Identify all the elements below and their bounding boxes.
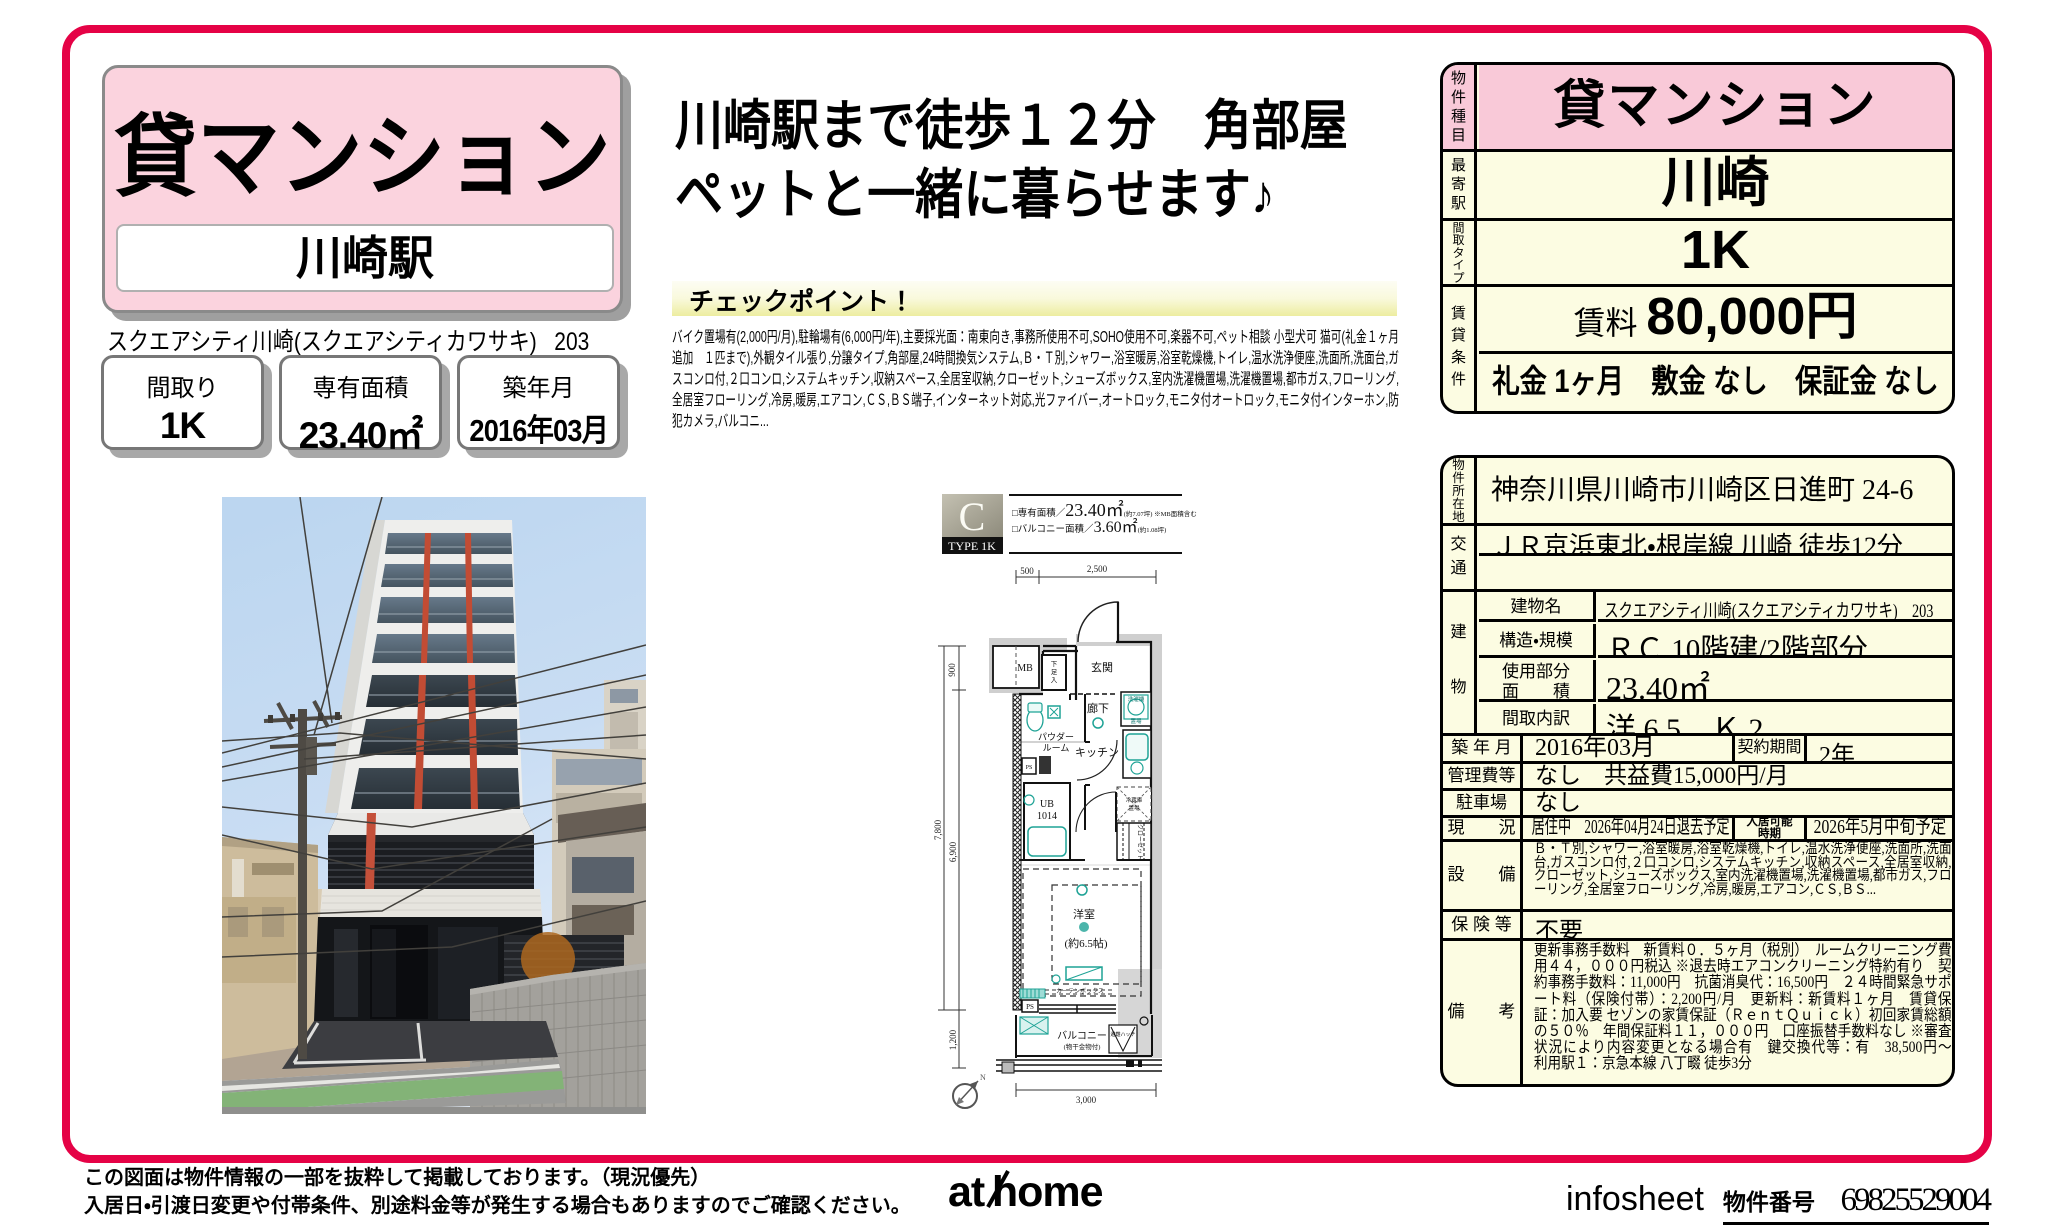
svg-text:□専有面積／23.40㎡(約7.07坪) ※MB面積含む: □専有面積／23.40㎡(約7.07坪) ※MB面積含む bbox=[1012, 499, 1197, 520]
svg-text:500: 500 bbox=[1020, 566, 1034, 576]
svg-text:廊下: 廊下 bbox=[1087, 701, 1109, 715]
svg-text:1014: 1014 bbox=[1037, 811, 1057, 822]
svg-text:(物干金物付): (物干金物付) bbox=[1064, 1042, 1101, 1051]
svg-text:6,900: 6,900 bbox=[948, 841, 958, 862]
svg-text:足: 足 bbox=[1051, 668, 1058, 676]
svg-text:カーテンボックス: カーテンボックス bbox=[1056, 987, 1104, 995]
svg-text:2,500: 2,500 bbox=[1087, 564, 1108, 574]
svg-text:キッチン: キッチン bbox=[1075, 746, 1119, 759]
svg-text:下: 下 bbox=[1051, 660, 1058, 668]
svg-text:□バルコニー面積／3.60㎡(約1.08坪): □バルコニー面積／3.60㎡(約1.08坪) bbox=[1012, 518, 1166, 536]
svg-text:UB: UB bbox=[1040, 799, 1054, 810]
svg-text:バルコニー: バルコニー bbox=[1057, 1030, 1107, 1042]
svg-text:洋室: 洋室 bbox=[1073, 907, 1095, 921]
svg-text:置場: 置場 bbox=[1128, 804, 1140, 812]
svg-text:900: 900 bbox=[947, 663, 957, 677]
svg-text:7,800: 7,800 bbox=[933, 819, 943, 840]
svg-text:(約6.5帖): (約6.5帖) bbox=[1064, 936, 1107, 950]
svg-text:MB: MB bbox=[1017, 663, 1033, 674]
svg-text:パウダー: パウダー bbox=[1038, 731, 1074, 742]
svg-text:PS: PS bbox=[1026, 1003, 1034, 1011]
svg-text:クローゼット: クローゼット bbox=[1136, 824, 1144, 860]
svg-text:洗濯機: 洗濯機 bbox=[1128, 695, 1145, 703]
svg-text:入: 入 bbox=[1051, 676, 1058, 684]
svg-text:1,200: 1,200 bbox=[948, 1029, 958, 1050]
svg-text:避難ハッチ: 避難ハッチ bbox=[1110, 1031, 1135, 1038]
svg-text:置場: 置場 bbox=[1130, 717, 1142, 725]
svg-text:3,000: 3,000 bbox=[1076, 1095, 1097, 1105]
svg-text:玄関: 玄関 bbox=[1091, 661, 1113, 674]
svg-text:C: C bbox=[959, 494, 986, 539]
svg-text:PS: PS bbox=[1026, 765, 1033, 771]
svg-text:ルーム: ルーム bbox=[1043, 743, 1070, 753]
svg-text:N: N bbox=[980, 1073, 986, 1082]
svg-text:TYPE 1K: TYPE 1K bbox=[948, 539, 996, 553]
svg-text:冷蔵庫: 冷蔵庫 bbox=[1126, 796, 1143, 804]
